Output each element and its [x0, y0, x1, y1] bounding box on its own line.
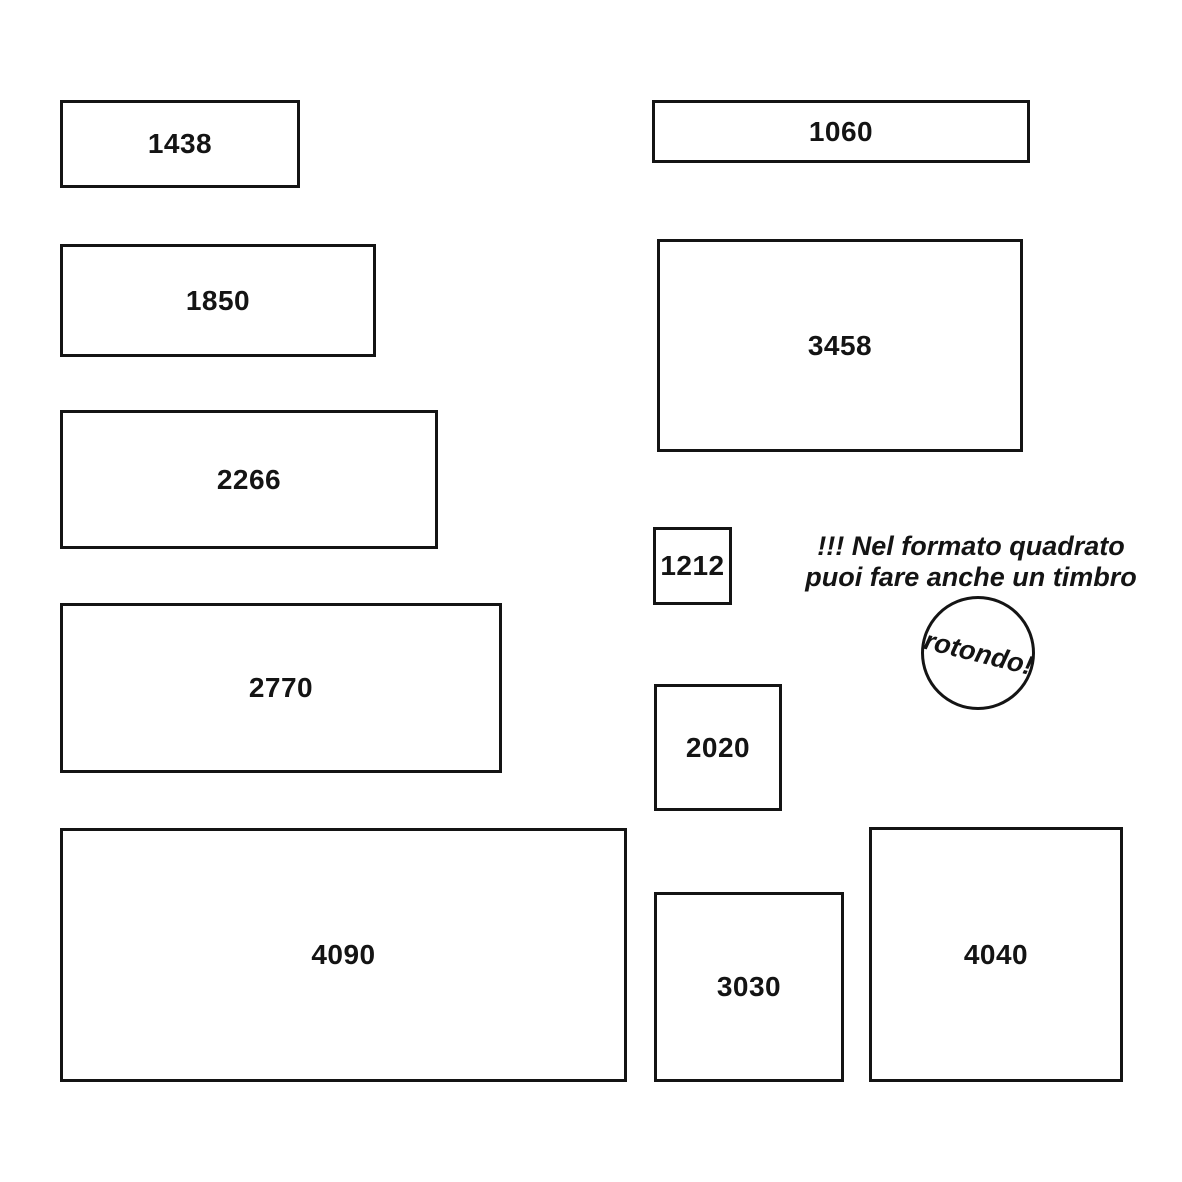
stamp-format-label: 3458 — [808, 330, 872, 362]
note-line-1: !!! Nel formato quadrato — [791, 531, 1151, 562]
stamp-format-4090: 4090 — [60, 828, 627, 1082]
square-format-note: !!! Nel formato quadrato puoi fare anche… — [791, 531, 1151, 593]
stamp-format-label: 2020 — [686, 732, 750, 764]
round-stamp-circle: rotondo! — [921, 596, 1035, 710]
stamp-format-label: 1850 — [186, 285, 250, 317]
stamp-format-1438: 1438 — [60, 100, 300, 188]
stamp-format-1850: 1850 — [60, 244, 376, 357]
stamp-format-2020: 2020 — [654, 684, 782, 811]
stamp-format-label: 3030 — [717, 971, 781, 1003]
stamp-format-label: 4090 — [311, 939, 375, 971]
stamp-format-2266: 2266 — [60, 410, 438, 549]
stamp-format-3030: 3030 — [654, 892, 844, 1082]
stamp-format-label: 1060 — [809, 116, 873, 148]
stamp-format-label: 4040 — [964, 939, 1028, 971]
stamp-format-3458: 3458 — [657, 239, 1023, 452]
stamp-format-label: 1212 — [660, 550, 724, 582]
note-line-2: puoi fare anche un timbro — [791, 562, 1151, 593]
stamp-format-label: 1438 — [148, 128, 212, 160]
stamp-format-1060: 1060 — [652, 100, 1030, 163]
stamp-format-4040: 4040 — [869, 827, 1123, 1082]
stamp-format-label: 2770 — [249, 672, 313, 704]
round-stamp-label: rotondo! — [920, 625, 1035, 682]
stamp-format-2770: 2770 — [60, 603, 502, 773]
stamp-format-1212: 1212 — [653, 527, 732, 605]
stamp-format-label: 2266 — [217, 464, 281, 496]
stamp-formats-diagram: 1438 1850 2266 2770 4090 1060 3458 1212 … — [0, 0, 1182, 1182]
